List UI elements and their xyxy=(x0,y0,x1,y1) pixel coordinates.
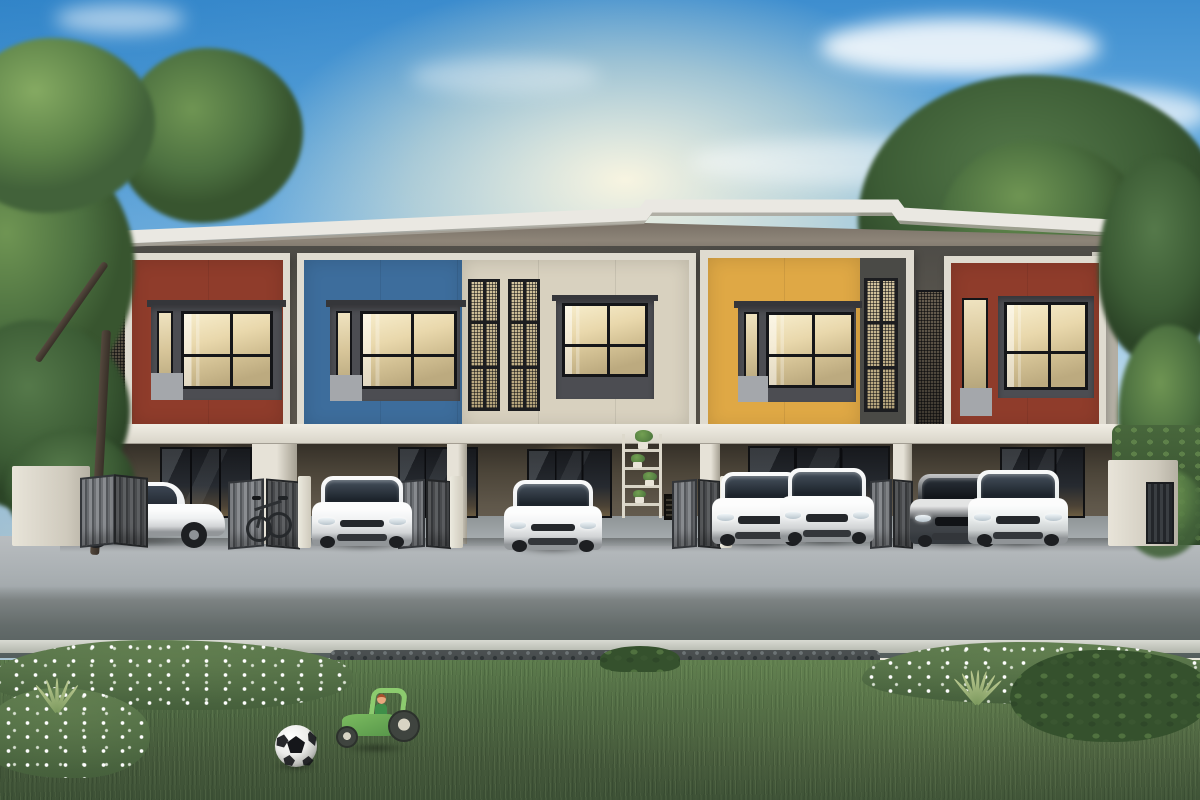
wheel xyxy=(852,532,866,544)
side-gate-right xyxy=(1146,482,1174,544)
folding-gate xyxy=(672,479,697,549)
headlight xyxy=(389,518,406,525)
plant-pot xyxy=(645,480,654,486)
bumper-intake xyxy=(528,538,578,545)
headlight xyxy=(853,512,869,519)
accent-panel xyxy=(738,376,768,402)
roof xyxy=(55,198,1150,258)
headlight xyxy=(785,512,801,519)
headlight xyxy=(717,514,734,521)
wheel xyxy=(977,534,992,546)
bicycle xyxy=(246,486,292,546)
bedroom-window xyxy=(1004,302,1088,390)
wheel xyxy=(1044,534,1059,546)
architectural-render-scene xyxy=(0,0,1200,800)
mesh-screen-shutter xyxy=(864,278,898,412)
bumper-intake xyxy=(337,534,387,541)
tall-narrow-window xyxy=(962,298,988,390)
wheel xyxy=(720,534,735,546)
bedroom-window xyxy=(360,311,457,389)
car-white-hatchback xyxy=(504,480,602,556)
plant-shelf xyxy=(622,434,662,518)
tractor-front-wheel xyxy=(336,726,358,748)
mesh-screen-shutter xyxy=(468,279,500,411)
wheel xyxy=(512,540,527,552)
mesh-screen-panel xyxy=(916,290,944,428)
cloud xyxy=(55,4,185,34)
bicycle-frame xyxy=(254,500,282,512)
headlight xyxy=(318,518,335,525)
car-white-hatchback xyxy=(312,476,412,552)
townhouse-unit-5 xyxy=(944,256,1106,434)
leafy-bush-right xyxy=(1010,650,1200,742)
grille xyxy=(806,514,848,522)
car-silver-hatchback xyxy=(968,470,1068,550)
plant-pot xyxy=(635,497,644,503)
bedroom-window xyxy=(562,303,648,377)
grille xyxy=(996,516,1040,524)
wheel-hub xyxy=(189,530,199,540)
accent-panel xyxy=(960,388,992,416)
grille xyxy=(738,516,782,524)
grille xyxy=(531,524,575,531)
accent-panel xyxy=(330,375,362,401)
bedroom-window xyxy=(181,311,273,389)
townhouse-unit-1 xyxy=(125,253,290,432)
bicycle-handlebar xyxy=(278,496,288,500)
headlight xyxy=(580,522,596,529)
grille xyxy=(340,520,384,527)
spiky-plant xyxy=(15,662,95,712)
grass-tuft xyxy=(600,646,680,672)
folding-gate xyxy=(80,474,116,548)
wheel xyxy=(389,536,404,548)
plant-pot xyxy=(633,462,642,468)
folding-gate xyxy=(114,474,148,548)
mesh-screen-shutter xyxy=(508,279,540,411)
townhouse-unit-4 xyxy=(700,250,914,436)
folding-gate xyxy=(426,479,451,549)
bumper-intake xyxy=(993,532,1043,539)
floor-divider-band xyxy=(60,424,1145,446)
gate-post xyxy=(450,476,463,548)
fence-wall-left xyxy=(12,466,90,546)
headlight xyxy=(1045,514,1062,521)
wheel xyxy=(788,532,802,544)
cloud xyxy=(820,18,1100,76)
potted-plant xyxy=(635,430,653,442)
cloud xyxy=(410,58,600,94)
headlight xyxy=(915,515,931,522)
bedroom-window xyxy=(766,312,854,388)
bumper-intake xyxy=(803,530,851,537)
car-white-hatchback xyxy=(780,468,874,548)
townhouse-unit-2-3 xyxy=(297,253,696,434)
wheel xyxy=(918,535,932,547)
headlight xyxy=(974,514,991,521)
spiky-plant xyxy=(930,648,1020,704)
bicycle-wheel xyxy=(266,512,292,538)
tractor-rear-wheel xyxy=(388,710,420,742)
soccer-ball xyxy=(272,722,320,770)
bicycle-seat xyxy=(252,496,261,500)
toy-tractor xyxy=(332,684,424,758)
driver-head xyxy=(377,694,386,704)
wheel xyxy=(579,540,594,552)
headlight xyxy=(510,522,526,529)
accent-panel xyxy=(151,373,183,400)
plant-pot xyxy=(638,442,648,449)
wheel xyxy=(320,536,335,548)
